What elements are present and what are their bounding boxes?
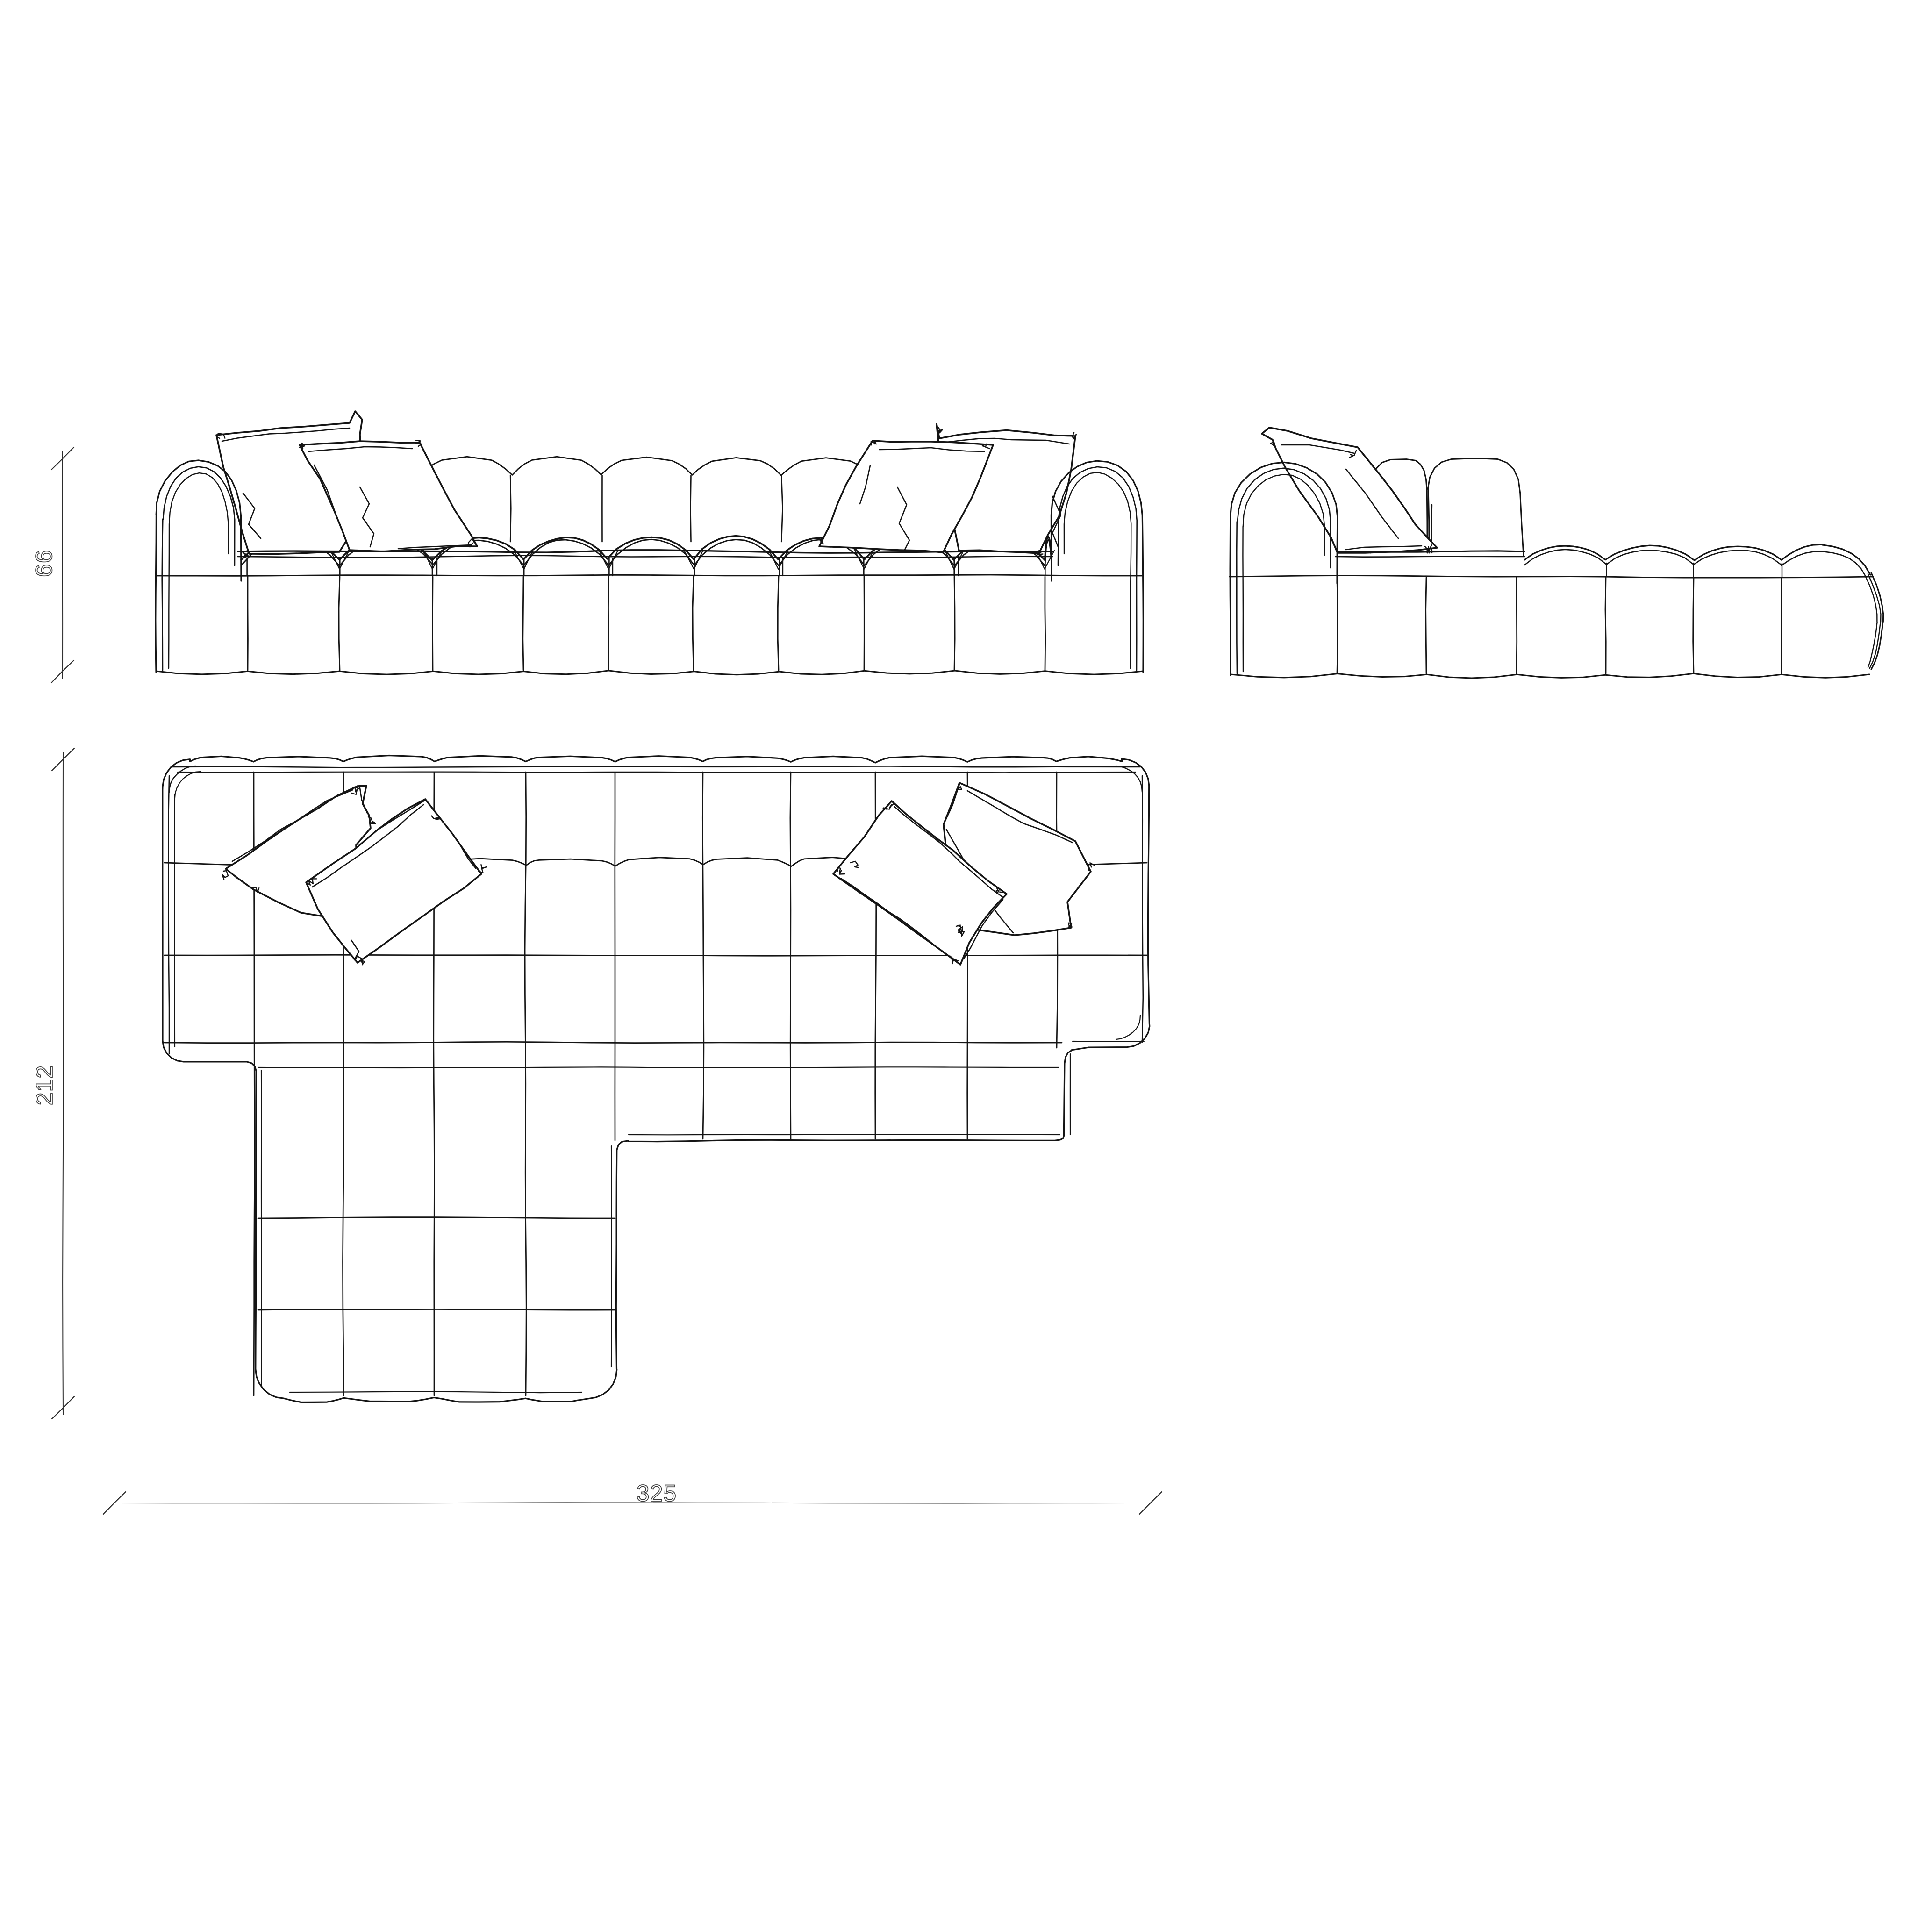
svg-text:212: 212 <box>31 1065 57 1105</box>
svg-text:325: 325 <box>637 1480 677 1506</box>
svg-text:66: 66 <box>31 549 57 577</box>
